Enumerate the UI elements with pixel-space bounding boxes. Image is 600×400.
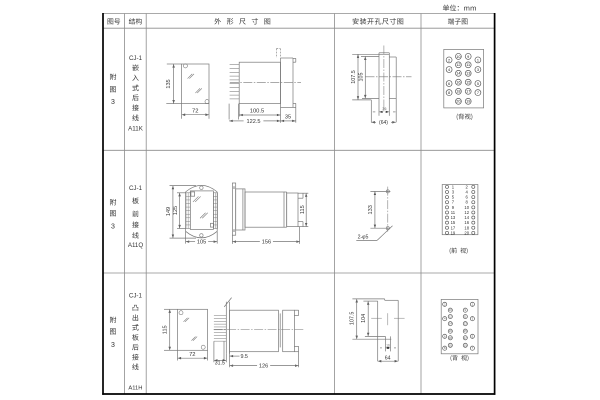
- svg-text:35: 35: [285, 114, 291, 120]
- svg-text:126: 126: [259, 364, 268, 370]
- svg-text:115: 115: [300, 205, 306, 214]
- svg-text:12: 12: [449, 315, 452, 319]
- svg-text:16: 16: [456, 81, 460, 85]
- svg-text:10: 10: [449, 308, 452, 312]
- svg-text:100.5: 100.5: [250, 109, 265, 115]
- svg-text:72: 72: [192, 108, 198, 114]
- svg-text:CJ-1: CJ-1: [129, 55, 143, 62]
- svg-text:16: 16: [382, 106, 387, 111]
- svg-text:115: 115: [162, 325, 168, 334]
- svg-text:15: 15: [464, 329, 467, 333]
- svg-text:20: 20: [456, 100, 460, 104]
- svg-text:13: 13: [466, 72, 470, 76]
- svg-text:4: 4: [448, 68, 450, 72]
- svg-text:A11H: A11H: [128, 386, 142, 392]
- svg-text:20: 20: [464, 230, 469, 235]
- svg-text:2-φ5: 2-φ5: [358, 235, 369, 241]
- svg-text:107.5: 107.5: [350, 312, 356, 326]
- svg-text:19: 19: [451, 230, 456, 235]
- svg-text:14: 14: [456, 72, 460, 76]
- svg-text:A11Q: A11Q: [128, 242, 144, 249]
- svg-text:15: 15: [466, 81, 470, 85]
- svg-text:17: 17: [466, 90, 470, 94]
- svg-text:149: 149: [166, 207, 172, 216]
- svg-text:3: 3: [477, 68, 479, 72]
- svg-text:2: 2: [448, 58, 450, 62]
- svg-text:8: 8: [448, 91, 450, 95]
- svg-text:A11K: A11K: [128, 126, 144, 133]
- svg-text:6: 6: [448, 82, 450, 86]
- svg-text:104: 104: [361, 314, 367, 323]
- svg-text:9.5: 9.5: [240, 354, 248, 360]
- svg-text:19: 19: [464, 343, 467, 347]
- svg-text:107.5: 107.5: [351, 70, 357, 84]
- svg-text:3: 3: [111, 224, 115, 231]
- svg-text:12: 12: [456, 63, 460, 67]
- svg-text:9: 9: [467, 55, 469, 59]
- svg-text:10: 10: [456, 55, 460, 59]
- svg-text:17: 17: [464, 336, 467, 340]
- svg-text:72: 72: [189, 352, 195, 358]
- svg-text:16: 16: [449, 329, 452, 333]
- svg-text:19: 19: [466, 100, 470, 104]
- svg-text:122.5: 122.5: [247, 119, 261, 125]
- svg-text:125: 125: [173, 206, 179, 215]
- svg-text:105: 105: [197, 240, 206, 246]
- svg-text:3: 3: [111, 342, 115, 349]
- svg-text:5: 5: [477, 82, 479, 86]
- svg-text:105: 105: [358, 73, 364, 82]
- svg-text:64: 64: [385, 355, 391, 361]
- svg-text:20: 20: [449, 343, 452, 347]
- svg-text:3: 3: [111, 99, 115, 106]
- svg-text:7: 7: [477, 91, 479, 95]
- svg-text:(64): (64): [379, 120, 388, 126]
- svg-text:18: 18: [456, 90, 460, 94]
- svg-text:CJ-1: CJ-1: [129, 292, 143, 299]
- svg-text:13: 13: [464, 322, 467, 326]
- svg-text:11: 11: [466, 63, 470, 67]
- svg-text:14: 14: [449, 322, 452, 326]
- svg-text:CJ-1: CJ-1: [129, 185, 143, 192]
- svg-text:11: 11: [464, 315, 467, 319]
- svg-text:133: 133: [368, 205, 374, 214]
- svg-text:1: 1: [477, 58, 479, 62]
- svg-text:135: 135: [166, 79, 172, 88]
- svg-text:18: 18: [449, 336, 452, 340]
- svg-text:156: 156: [262, 240, 271, 246]
- svg-text:31.5: 31.5: [215, 361, 225, 367]
- svg-text:16: 16: [386, 343, 390, 347]
